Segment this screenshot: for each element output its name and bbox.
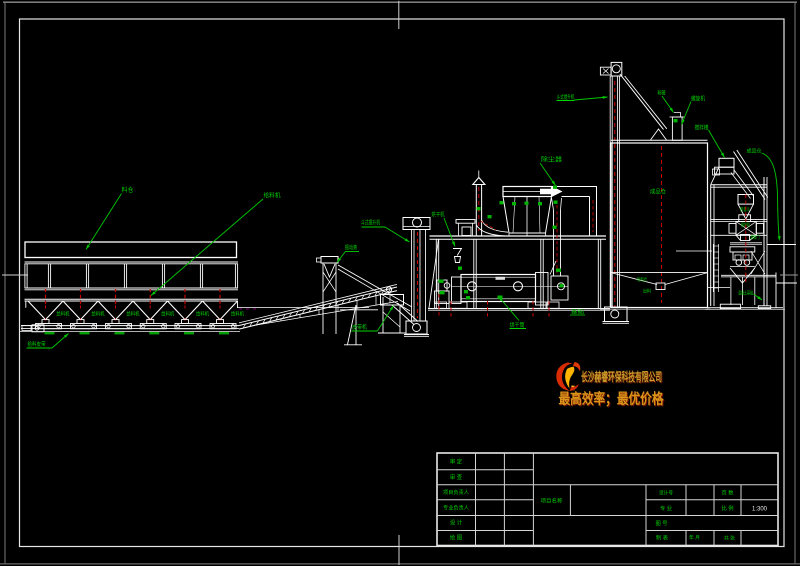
svg-text:基础: 基础 [571, 309, 584, 316]
svg-text:烘干机: 烘干机 [432, 211, 445, 219]
svg-text:给料机: 给料机 [231, 310, 245, 318]
svg-text:斗式提升机: 斗式提升机 [557, 93, 575, 101]
svg-text:除尘器: 除尘器 [541, 156, 563, 164]
svg-text:螺旋机: 螺旋机 [691, 95, 706, 103]
svg-text:设计号: 设计号 [659, 489, 673, 497]
svg-text:绘 图: 绘 图 [450, 534, 462, 542]
svg-text:搅拌楼: 搅拌楼 [695, 124, 710, 132]
svg-text:审 查: 审 查 [450, 473, 463, 481]
svg-text:卸料门: 卸料门 [751, 234, 760, 241]
svg-text:图 号: 图 号 [656, 520, 668, 527]
svg-text:热料仓: 热料仓 [637, 276, 647, 283]
svg-text:混凝土基础: 混凝土基础 [738, 289, 753, 296]
svg-text:给料机: 给料机 [57, 310, 71, 318]
svg-text:年 月: 年 月 [689, 534, 700, 541]
svg-text:粉罐: 粉罐 [658, 90, 666, 97]
svg-text:振动筛: 振动筛 [345, 244, 357, 252]
svg-text:给料机: 给料机 [127, 310, 141, 318]
svg-text:审 定: 审 定 [450, 458, 463, 466]
svg-text:最高效率；最优价格: 最高效率；最优价格 [559, 390, 664, 408]
svg-text:1:300: 1:300 [752, 507, 768, 513]
svg-text:页 数: 页 数 [722, 489, 735, 497]
svg-text:成品仓: 成品仓 [650, 188, 666, 196]
svg-text:成品仓: 成品仓 [747, 147, 762, 154]
svg-text:给料皮带: 给料皮带 [28, 340, 46, 348]
svg-text:料仓: 料仓 [122, 186, 134, 194]
svg-text:给料机: 给料机 [264, 192, 281, 200]
svg-text:给料机: 给料机 [92, 310, 106, 318]
svg-text:共 张: 共 张 [724, 535, 735, 542]
svg-text:专 业: 专 业 [660, 504, 672, 512]
svg-text:项目负责人: 项目负责人 [443, 489, 469, 496]
svg-text:长沙赫睿环保科技有限公司: 长沙赫睿环保科技有限公司 [581, 369, 662, 384]
svg-text:称量斗: 称量斗 [740, 206, 750, 213]
svg-text:给料机: 给料机 [196, 310, 210, 318]
svg-text:制 表: 制 表 [656, 534, 669, 542]
svg-text:出料: 出料 [643, 288, 651, 295]
svg-text:烘干筒: 烘干筒 [510, 321, 526, 329]
svg-text:项目名称: 项目名称 [541, 497, 563, 505]
svg-text:专业负责人: 专业负责人 [443, 505, 469, 512]
svg-text:给料机: 给料机 [161, 310, 175, 318]
svg-text:斗式提升机: 斗式提升机 [361, 219, 380, 227]
svg-text:比 例: 比 例 [722, 504, 734, 512]
svg-text:设 计: 设 计 [450, 519, 463, 527]
svg-text:皮带机: 皮带机 [352, 323, 368, 331]
